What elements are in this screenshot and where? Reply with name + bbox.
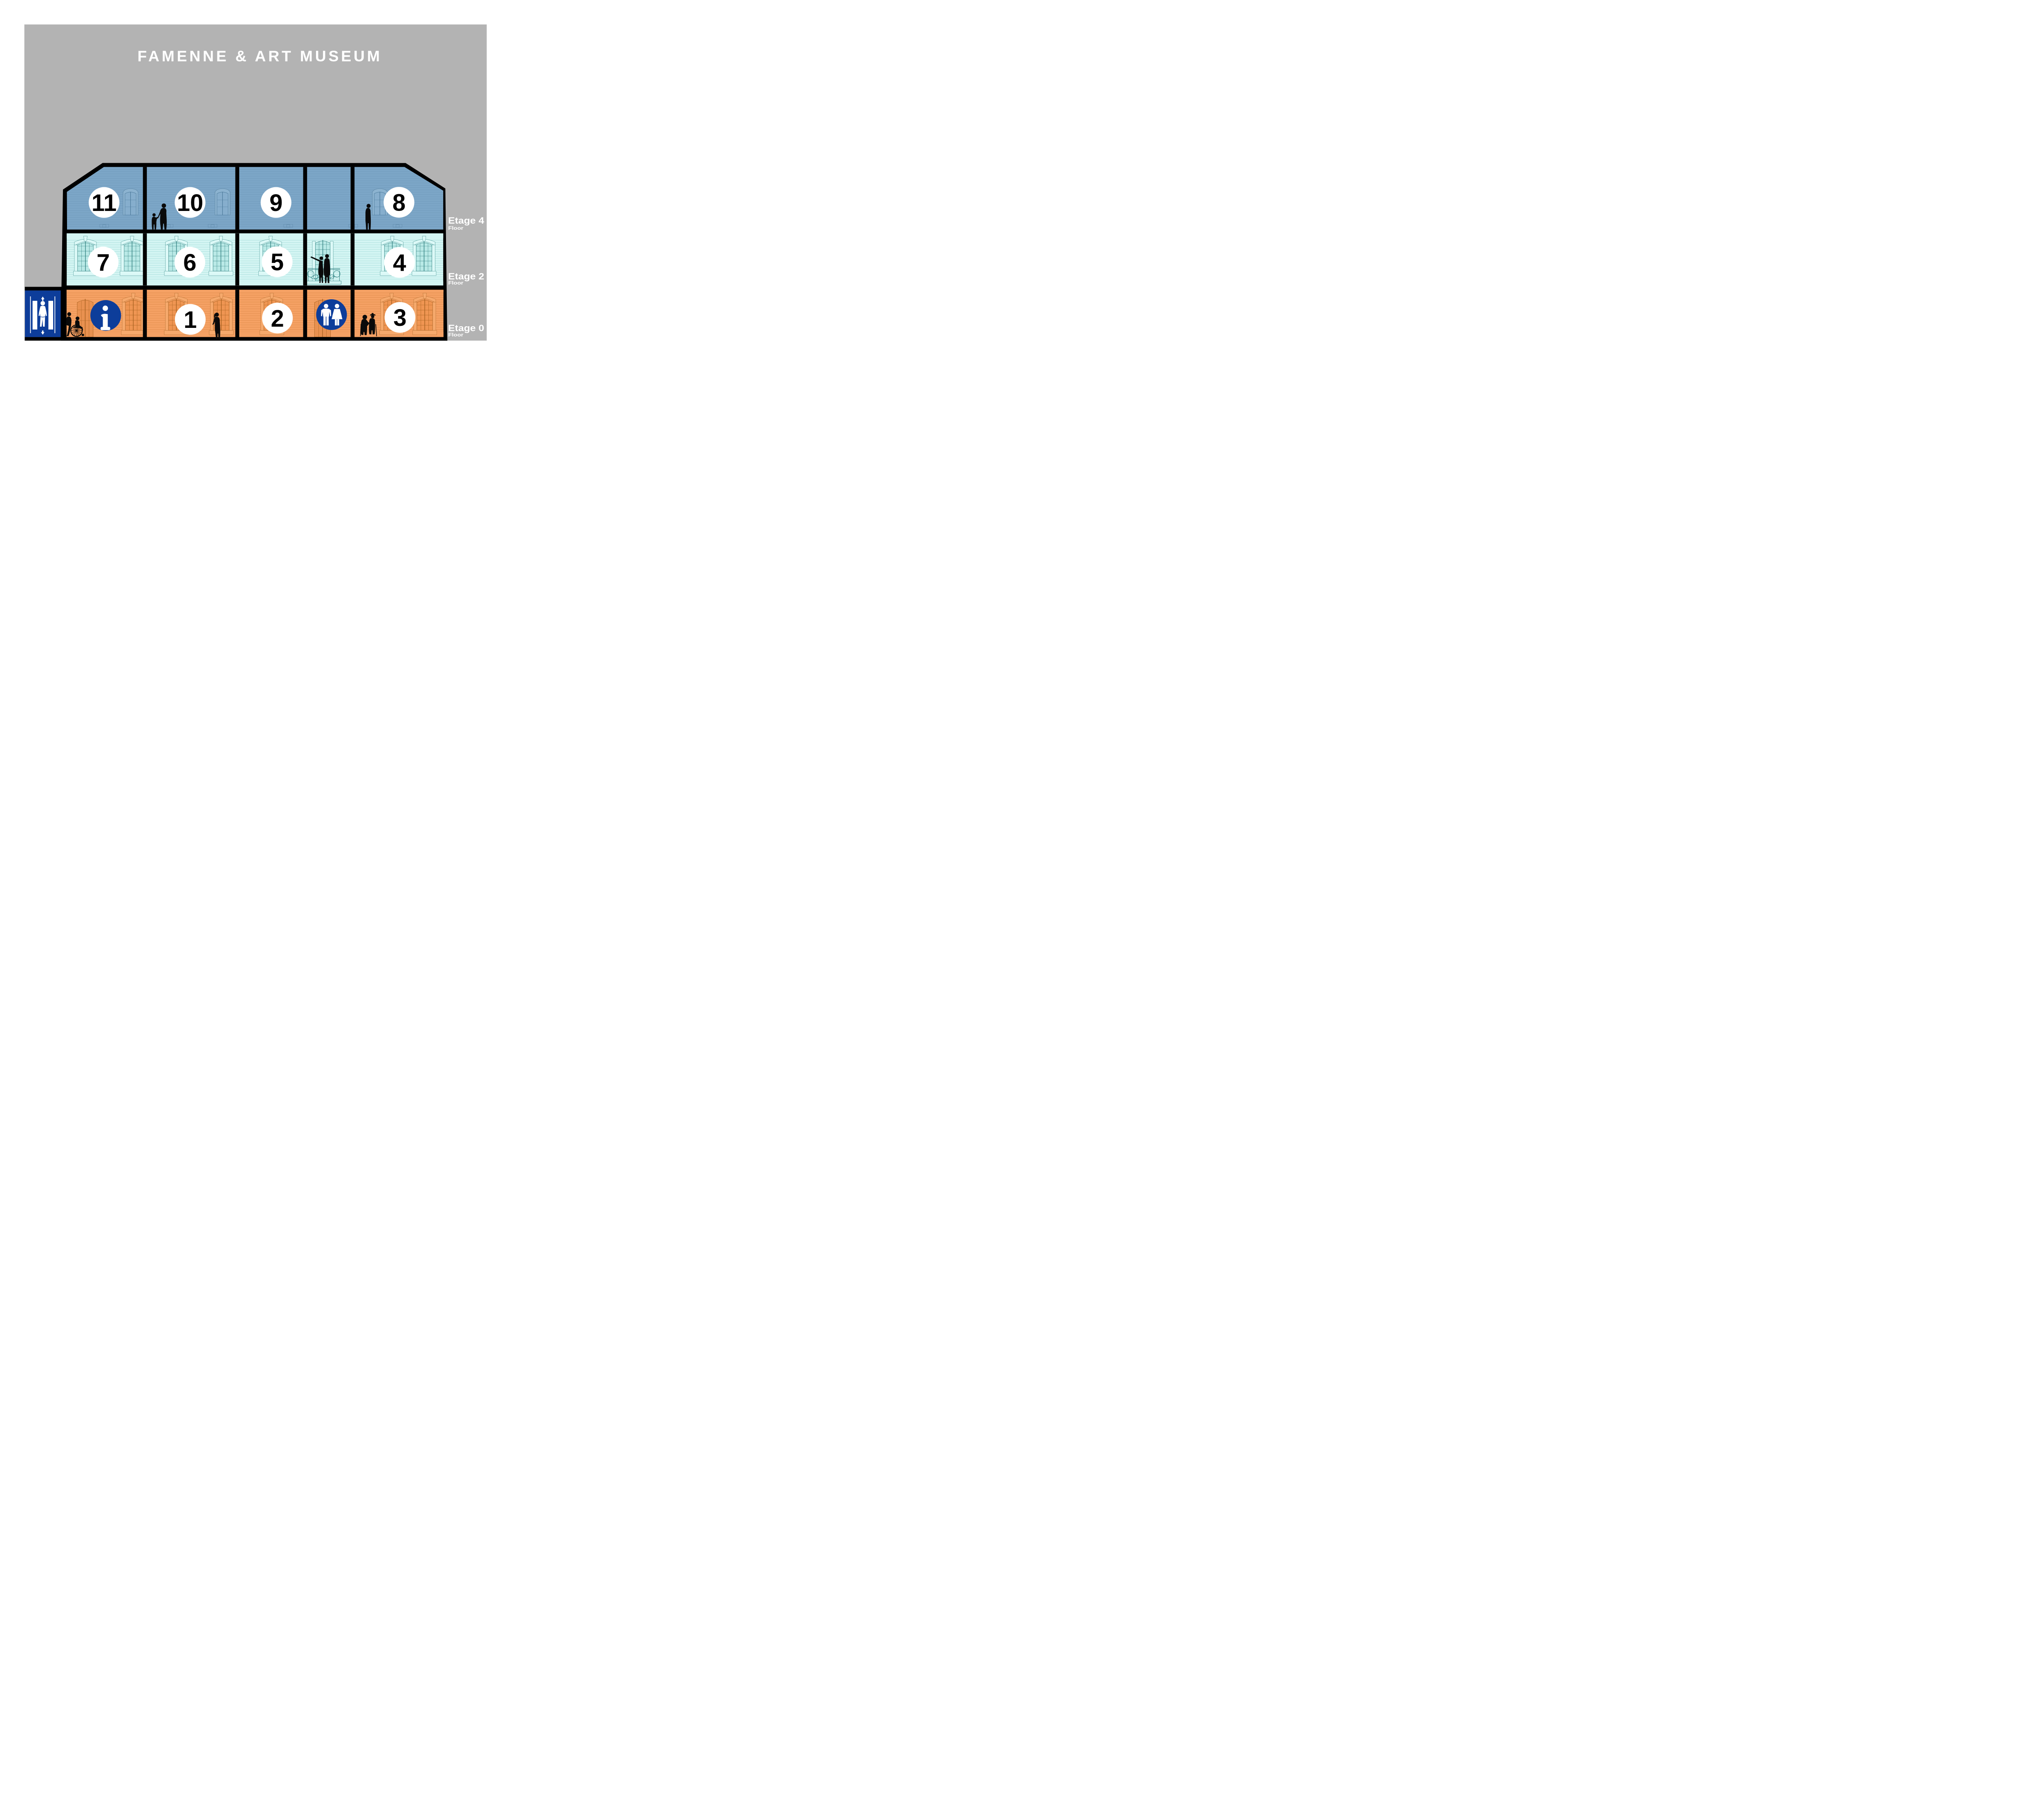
svg-text:11: 11 bbox=[92, 190, 117, 216]
svg-text:Etage 0: Etage 0 bbox=[448, 323, 484, 333]
svg-text:Floor: Floor bbox=[448, 225, 463, 231]
svg-text:FAMENNE & ART MUSEUM: FAMENNE & ART MUSEUM bbox=[137, 47, 380, 65]
svg-text:2: 2 bbox=[271, 305, 284, 332]
svg-text:Floor: Floor bbox=[448, 332, 463, 338]
svg-text:Etage 2: Etage 2 bbox=[448, 271, 484, 281]
svg-text:Etage 4: Etage 4 bbox=[448, 215, 484, 226]
svg-text:4: 4 bbox=[393, 250, 406, 276]
svg-text:Floor: Floor bbox=[448, 280, 463, 286]
svg-text:6: 6 bbox=[183, 249, 196, 276]
svg-text:10: 10 bbox=[177, 190, 204, 216]
svg-text:8: 8 bbox=[392, 190, 406, 216]
svg-text:5: 5 bbox=[271, 249, 284, 276]
svg-text:3: 3 bbox=[393, 305, 406, 331]
svg-text:7: 7 bbox=[96, 249, 110, 276]
svg-text:9: 9 bbox=[269, 190, 282, 216]
svg-text:1: 1 bbox=[184, 307, 197, 333]
